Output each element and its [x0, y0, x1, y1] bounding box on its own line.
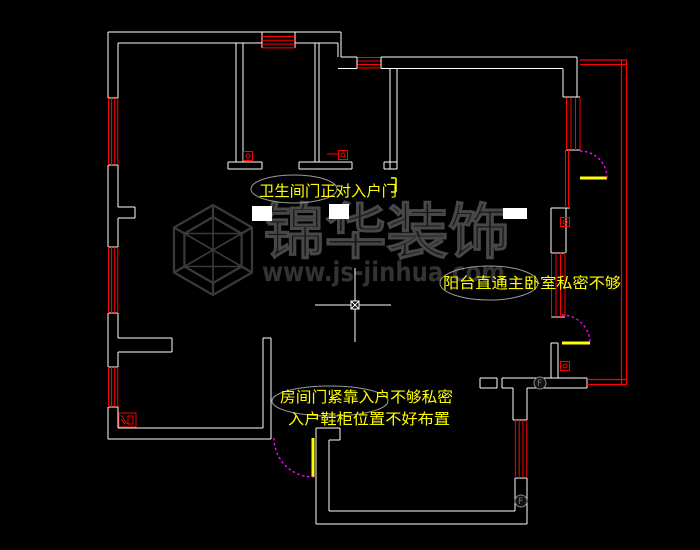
cad-drawing-area[interactable]: 锦华装饰 www.js-jinhua.com [0, 0, 700, 550]
section-marker-1: F [534, 377, 546, 389]
crosshair-pickbox-hatch [351, 301, 359, 309]
svg-text:F: F [518, 497, 523, 507]
top-window-1 [262, 37, 295, 48]
top-walls [108, 32, 577, 69]
wall-symbol-1 [561, 218, 570, 227]
floor-drain-2 [327, 151, 348, 160]
section-marker-2: F [515, 495, 527, 507]
column-fill-1 [252, 206, 272, 221]
bathroom-walls [228, 43, 397, 169]
top-balcony-door-swing-arc [580, 151, 607, 178]
balcony-outline [580, 60, 627, 385]
svg-text:F: F [537, 379, 542, 389]
top-balcony-door [580, 151, 607, 178]
callout-text-2: 阳台直通主卧室私密不够 [443, 274, 621, 292]
left-window-3 [109, 367, 118, 407]
cube-wireframe-logo [174, 205, 252, 295]
master-balcony-door-swing-arc [562, 315, 590, 343]
top-right-window [567, 98, 581, 150]
callout-text-3-line1: 房间门紧靠入户不够私密 [280, 388, 453, 406]
balcony-rails[interactable] [580, 60, 627, 385]
floorplan-svg: 锦华装饰 www.js-jinhua.com [0, 0, 700, 550]
appliance-symbol [119, 413, 136, 427]
bottom-right-window [515, 420, 526, 478]
callout-text-3-line2: 入户鞋柜位置不好布置 [288, 410, 450, 428]
left-window-2 [109, 247, 118, 313]
column-fill-2 [329, 204, 349, 219]
left-window-1 [109, 98, 118, 165]
balcony-wall-edge [566, 150, 569, 208]
entry-door [274, 438, 313, 477]
callout-text-1: 卫生间门正对入户门 [259, 182, 397, 200]
entry-door-swing-arc [274, 438, 313, 477]
column-fill-3 [503, 208, 527, 219]
master-balcony-door [562, 315, 590, 343]
floor-drain-1 [244, 152, 253, 161]
wall-symbol-2 [561, 362, 570, 371]
top-window-2 [358, 58, 381, 69]
entry-corridor-walls [316, 428, 340, 524]
